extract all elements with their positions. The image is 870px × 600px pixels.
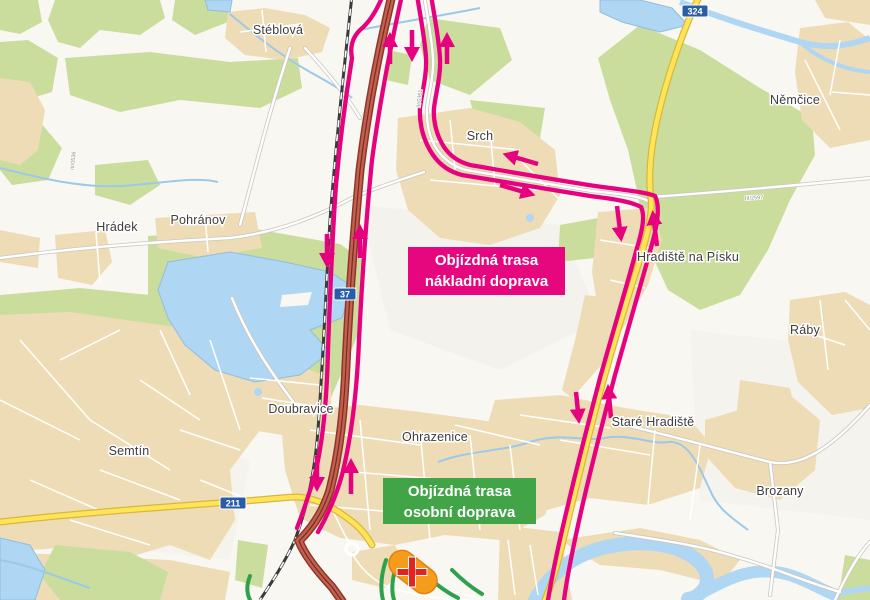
direction-arrow-icon — [576, 392, 578, 412]
town-label-hradiste-na-pisku: Hradiště na Písku — [637, 250, 739, 264]
town-label-nemcice: Němčice — [770, 93, 820, 107]
road-shield-211: 211 — [220, 497, 246, 509]
town-label-srch: Srch — [467, 129, 494, 143]
town-label-hradek: Hrádek — [96, 220, 138, 234]
town-label-stare-hradiste: Staré Hradiště — [612, 415, 695, 429]
road-shield-211-label: 211 — [226, 499, 241, 509]
road-shield-324-label: 324 — [687, 7, 702, 17]
freight-detour-label-line2: nákladní doprava — [416, 271, 557, 292]
road-shield-37-label: 37 — [340, 290, 350, 300]
road-shield-37: 37 — [334, 288, 356, 300]
freight-detour-label-line1: Objízdná trasa — [416, 250, 557, 271]
freight-detour-label: Objízdná trasa nákladní doprava — [408, 247, 565, 295]
town-label-semtin: Semtín — [109, 444, 150, 458]
passenger-detour-label: Objízdná trasa osobní doprava — [383, 478, 536, 524]
road-shield-324: 324 — [682, 5, 708, 17]
map-canvas: 37 324 211 III/0361 III/2597 III/0536 St… — [0, 0, 870, 600]
passenger-detour-label-line2: osobní doprava — [391, 502, 528, 523]
direction-arrow-icon — [617, 206, 620, 230]
town-label-doubravice: Doubravice — [268, 402, 333, 416]
town-label-brozany: Brozany — [756, 484, 804, 498]
town-label-raby: Ráby — [790, 323, 821, 337]
town-label-pohranov: Pohránov — [170, 213, 226, 227]
road-ref-label: III/2597 — [745, 195, 764, 202]
direction-arrow-icon — [654, 222, 657, 246]
town-label-steblova: Stéblová — [253, 23, 303, 37]
town-label-ohrazenice: Ohrazenice — [402, 430, 468, 444]
passenger-detour-label-line1: Objízdná trasa — [391, 481, 528, 502]
